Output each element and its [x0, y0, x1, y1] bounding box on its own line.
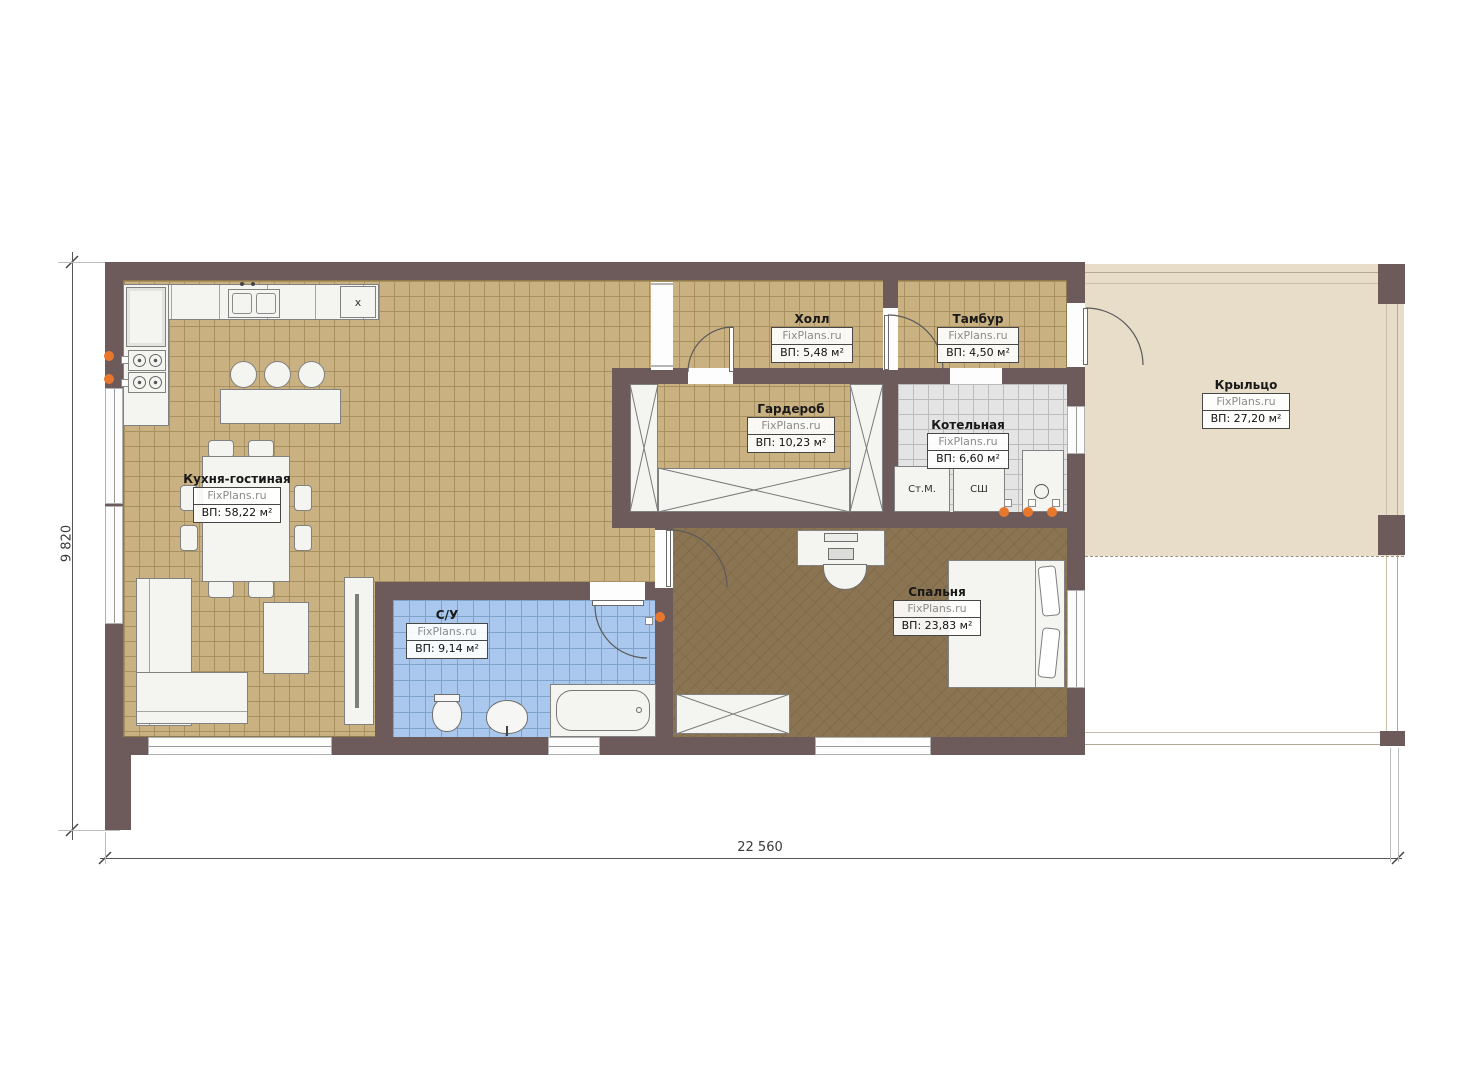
door-swing-arc-hall-tambour — [888, 315, 943, 370]
heater-icon — [1047, 507, 1057, 517]
dimension-line-bottom — [100, 858, 1402, 859]
heater-tab — [121, 379, 129, 387]
heater-icon — [1023, 507, 1033, 517]
heater-tab — [1004, 499, 1012, 507]
door-swing-arc-hall-wardrobe — [688, 327, 733, 372]
heater-icon — [104, 351, 114, 361]
plan-linework — [0, 0, 1474, 1080]
door-swing-arc-tambour-porch — [1086, 308, 1143, 365]
extension-line — [58, 262, 105, 263]
heater-tab — [121, 356, 129, 364]
floor-plan: x Ст.М. СШ — [0, 0, 1474, 1080]
extension-line — [1390, 748, 1391, 862]
heater-icon — [104, 374, 114, 384]
extension-line — [105, 832, 106, 864]
closet-x-hatch — [630, 384, 883, 734]
dimension-label-width: 22 560 — [700, 840, 820, 855]
heater-tab — [1052, 499, 1060, 507]
heater-tab — [645, 617, 653, 625]
door-swing-arc-kitchen-bathroom — [595, 606, 647, 658]
door-swing-arc-kitchen-bedroom — [670, 530, 727, 587]
dimension-ticks — [66, 256, 1404, 864]
heater-icon — [999, 507, 1009, 517]
extension-line — [58, 830, 120, 831]
heater-tab — [1028, 499, 1036, 507]
dimension-label-height: 9 820 — [60, 489, 75, 599]
extension-line — [1398, 748, 1399, 862]
heater-icon — [655, 612, 665, 622]
